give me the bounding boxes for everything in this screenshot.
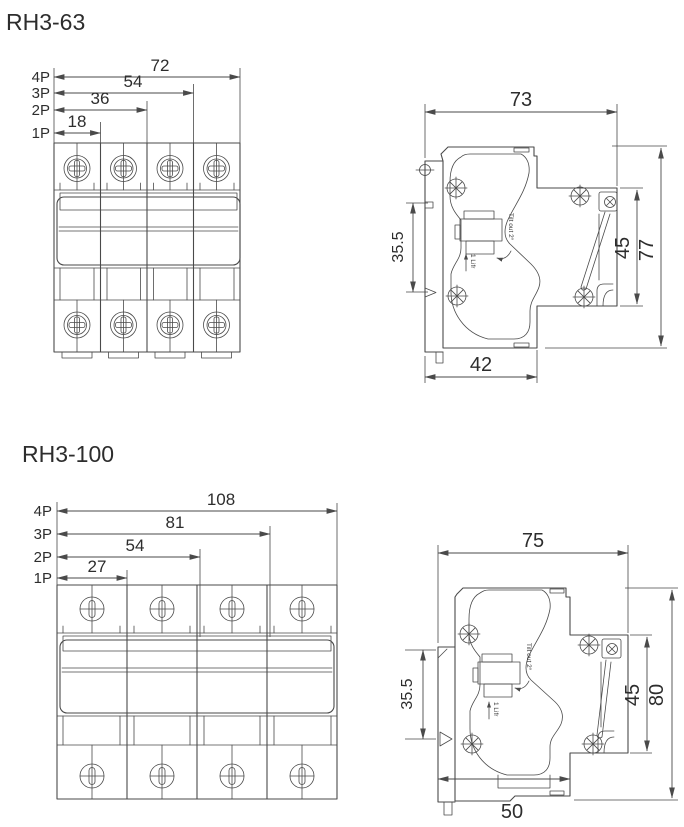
dim-side-height-din: 45	[612, 237, 634, 259]
svg-text:1 Lifr: 1 Lifr	[469, 254, 476, 269]
rh3-100-front-view	[57, 585, 337, 799]
section-title-rh3-63: RH3-63	[6, 9, 85, 35]
dim-side-height-front: 35.5	[390, 231, 407, 262]
section-screw-icon	[445, 177, 467, 199]
section-screw-icon	[458, 623, 480, 645]
dim-side-width-bottom: 42	[470, 354, 492, 376]
section-screw-icon	[582, 733, 604, 755]
section-screw-icon	[573, 286, 595, 308]
datum-triangle-mark	[425, 288, 436, 297]
pole-label-2p: 2P	[34, 549, 52, 566]
note-tilt-out: Tilt out 2°	[515, 643, 533, 689]
section-screw-icon	[578, 634, 600, 656]
dim-width-1p: 27	[88, 557, 107, 576]
pole-label-4p: 4P	[32, 69, 50, 86]
section-screw-icon	[446, 285, 468, 307]
dim-side-width-top: 73	[510, 89, 532, 111]
section-title-rh3-100: RH3-100	[22, 441, 114, 467]
svg-text:Tilt out 2°: Tilt out 2°	[507, 213, 515, 241]
svg-text:1 Lifr: 1 Lifr	[492, 702, 499, 717]
dim-side-width-bottom: 50	[501, 801, 523, 823]
pole-label-3p: 3P	[32, 85, 50, 102]
dim-side-height-total: 77	[636, 239, 658, 261]
datum-triangle-mark	[440, 732, 452, 746]
dim-side-height-din: 45	[622, 684, 644, 706]
rh3-100-side-view: Tilt out 2° 1 Lifr 75 35.5 45 80 50	[399, 530, 678, 823]
note-lift: 1 Lifr	[489, 702, 499, 719]
dim-width-3p: 81	[166, 513, 185, 532]
pole-label-1p: 1P	[34, 570, 52, 587]
section-screw-icon	[461, 733, 483, 755]
terminal-screw-icon	[150, 597, 174, 621]
dim-side-height-total: 80	[646, 684, 668, 706]
dim-width-1p: 18	[68, 112, 87, 131]
dim-width-4p: 72	[151, 56, 170, 75]
dim-width-2p: 54	[126, 536, 145, 555]
drawing-sheet: RH3-63 4P 3P 2P 1P 72 54 36 18	[0, 0, 684, 827]
latch-pivot-icon	[607, 644, 618, 655]
latch-pivot-icon	[605, 197, 616, 208]
dim-side-height-front: 35.5	[399, 678, 416, 709]
rh3-63-front-view	[54, 143, 240, 358]
terminal-screw-icon	[290, 597, 314, 621]
terminal-screw-icon	[150, 764, 174, 788]
note-tilt-out: Tilt out 2°	[497, 213, 515, 259]
din-latch-lever	[597, 660, 611, 738]
pole-label-2p: 2P	[32, 102, 50, 119]
dim-width-2p: 36	[91, 89, 110, 108]
dim-width-3p: 54	[124, 72, 143, 91]
pole-label-1p: 1P	[32, 125, 50, 142]
rh3-63-side-view: Tilt out 2° 1 Lifr 73 35.5 45 77 42	[390, 89, 667, 383]
rh3-63-front-dimensions: 4P 3P 2P 1P 72 54 36 18	[32, 56, 240, 196]
svg-text:Tilt out 2°: Tilt out 2°	[525, 643, 533, 671]
terminal-screw-icon	[220, 764, 244, 788]
technical-drawing: RH3-63 4P 3P 2P 1P 72 54 36 18	[0, 0, 684, 827]
dim-width-4p: 108	[207, 490, 235, 509]
terminal-clamp-detail	[455, 211, 502, 254]
terminal-screw-icon	[80, 764, 104, 788]
dim-side-width-top: 75	[522, 530, 544, 552]
terminal-screw-icon	[220, 597, 244, 621]
terminal-screw-icon	[80, 597, 104, 621]
din-latch-lever	[581, 212, 610, 290]
note-lift: 1 Lifr	[466, 254, 476, 271]
terminal-screw-icon	[290, 764, 314, 788]
pole-label-3p: 3P	[34, 526, 52, 543]
pole-label-4p: 4P	[34, 503, 52, 520]
